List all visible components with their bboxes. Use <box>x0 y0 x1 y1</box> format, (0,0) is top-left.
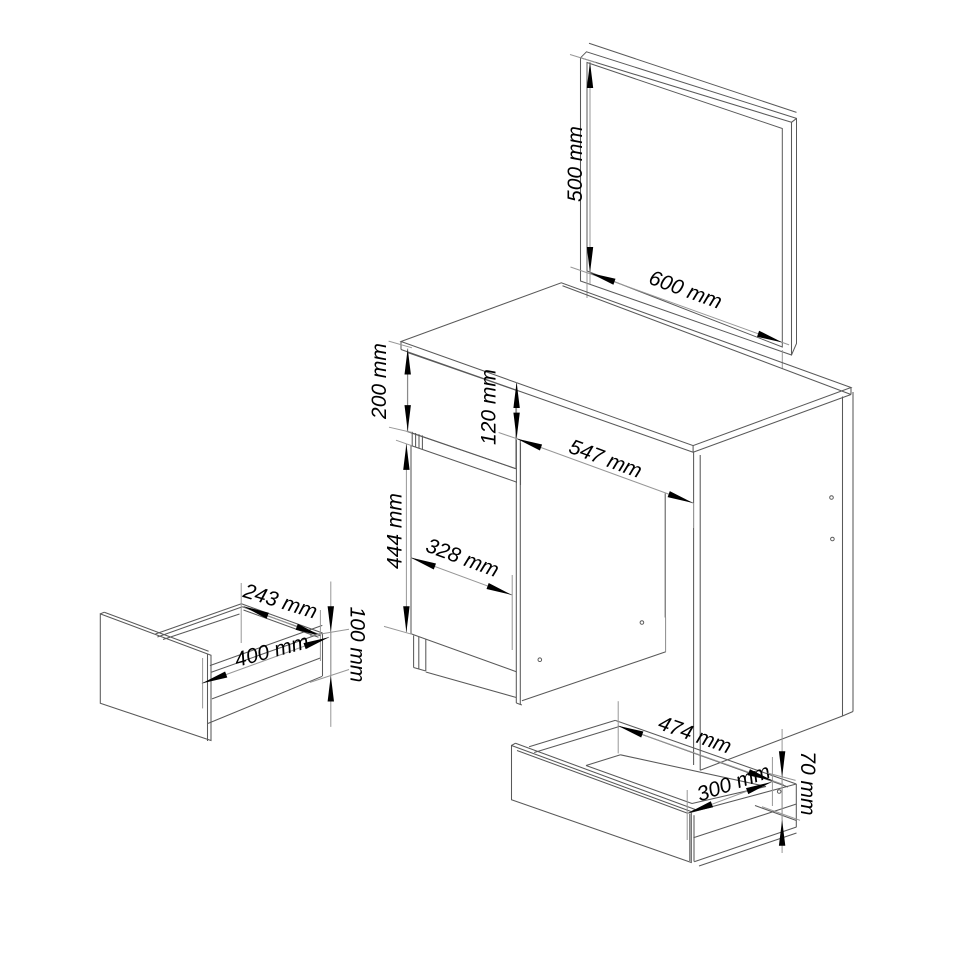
svg-text:120 mm: 120 mm <box>477 369 500 445</box>
svg-text:200 mm: 200 mm <box>368 343 391 420</box>
svg-text:100 mm: 100 mm <box>345 607 368 683</box>
svg-text:444 mm: 444 mm <box>384 493 407 569</box>
svg-text:500 mm: 500 mm <box>564 126 587 202</box>
svg-text:70 mm: 70 mm <box>796 751 819 815</box>
